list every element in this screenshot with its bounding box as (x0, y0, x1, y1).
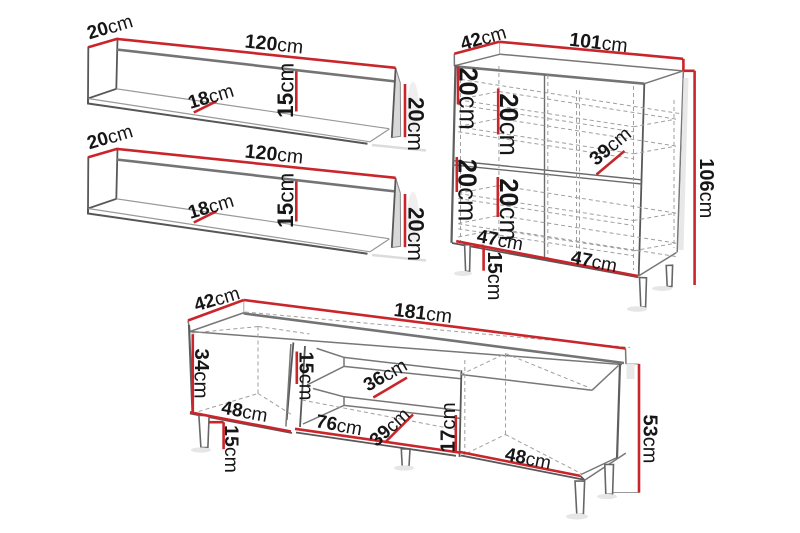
svg-text:15cm: 15cm (483, 252, 505, 301)
svg-text:53cm: 53cm (639, 415, 661, 464)
svg-text:20cm: 20cm (494, 93, 522, 155)
svg-text:15cm: 15cm (220, 425, 242, 473)
svg-text:20cm: 20cm (454, 67, 482, 129)
svg-text:15cm: 15cm (295, 352, 317, 401)
svg-text:34cm: 34cm (190, 348, 213, 398)
svg-text:17cm: 17cm (437, 402, 460, 452)
svg-text:20cm: 20cm (453, 159, 481, 221)
svg-text:106cm: 106cm (695, 158, 717, 218)
